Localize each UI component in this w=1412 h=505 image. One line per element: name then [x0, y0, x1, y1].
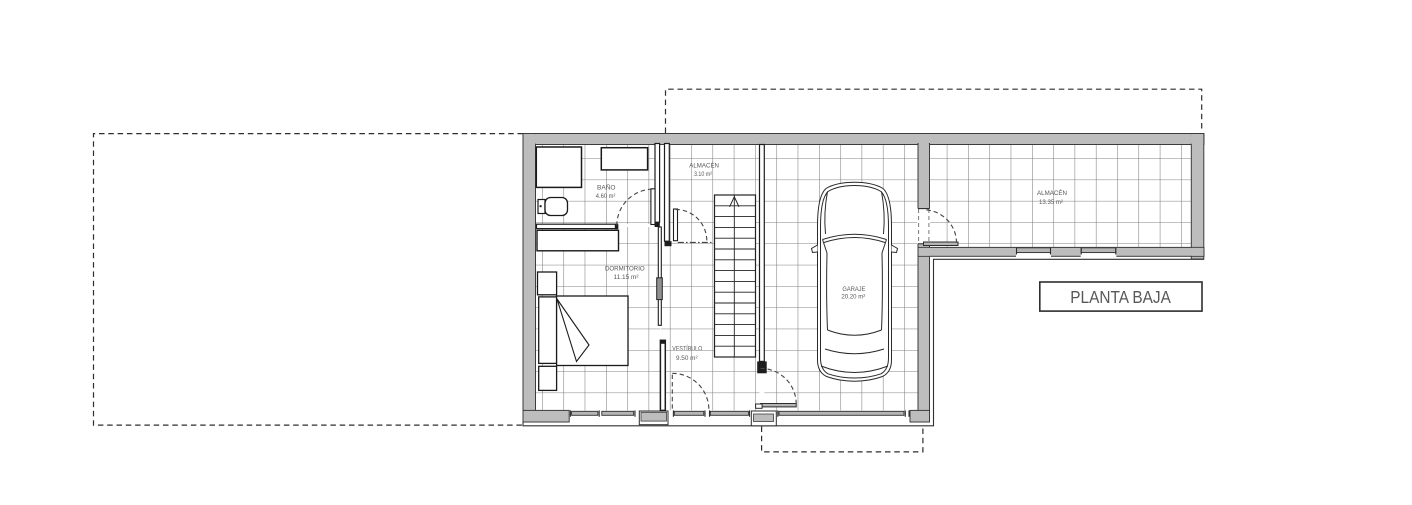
svg-text:4.60 m²: 4.60 m²	[596, 193, 616, 200]
svg-text:BAÑO: BAÑO	[597, 182, 616, 191]
svg-text:11.15 m²: 11.15 m²	[614, 274, 640, 281]
svg-text:3.10 m²: 3.10 m²	[694, 171, 713, 178]
svg-text:9.50 m²: 9.50 m²	[676, 355, 698, 362]
svg-text:VESTÍBULO: VESTÍBULO	[672, 344, 702, 353]
svg-text:13.35 m²: 13.35 m²	[1039, 199, 1064, 206]
svg-text:GARAJE: GARAJE	[842, 286, 866, 293]
svg-text:PLANTA BAJA: PLANTA BAJA	[1070, 287, 1171, 307]
svg-text:20.20 m²: 20.20 m²	[841, 294, 866, 301]
svg-text:ALMACÉN: ALMACÉN	[689, 160, 719, 169]
svg-text:ALMACÉN: ALMACÉN	[1037, 188, 1067, 197]
svg-text:DORMITORIO: DORMITORIO	[605, 266, 645, 273]
